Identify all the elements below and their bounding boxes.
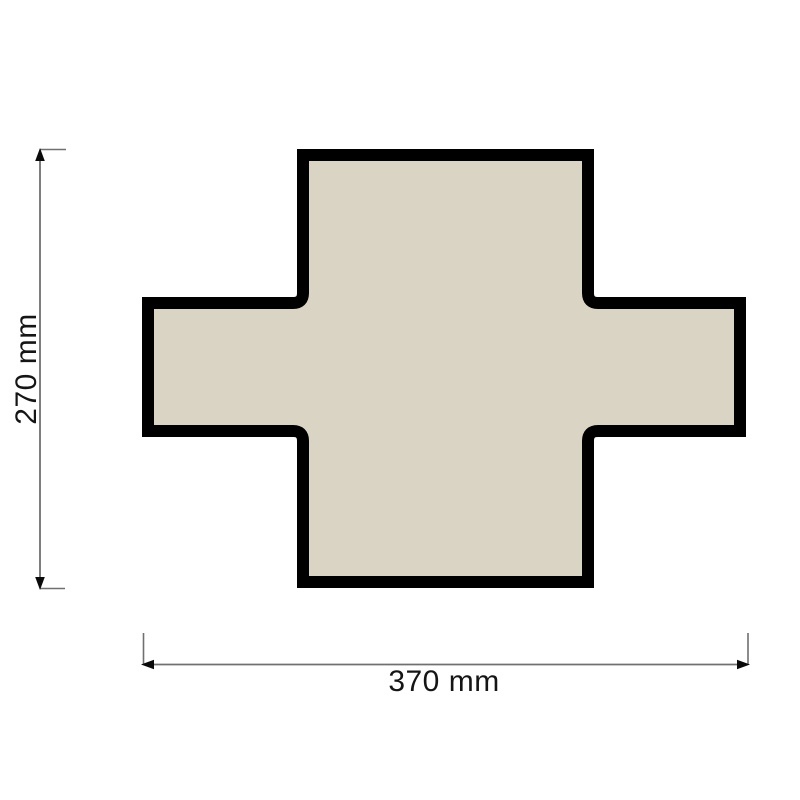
vertical-dimension: 270 mm bbox=[10, 148, 66, 590]
height-dimension-label: 270 mm bbox=[10, 313, 43, 424]
technical-drawing-canvas: 270 mm 370 mm bbox=[0, 0, 800, 800]
cross-shape bbox=[148, 155, 740, 582]
cross-shape-drawing: 270 mm 370 mm bbox=[0, 0, 800, 800]
horizontal-dimension: 370 mm bbox=[141, 633, 750, 698]
width-dimension-label: 370 mm bbox=[388, 665, 499, 698]
